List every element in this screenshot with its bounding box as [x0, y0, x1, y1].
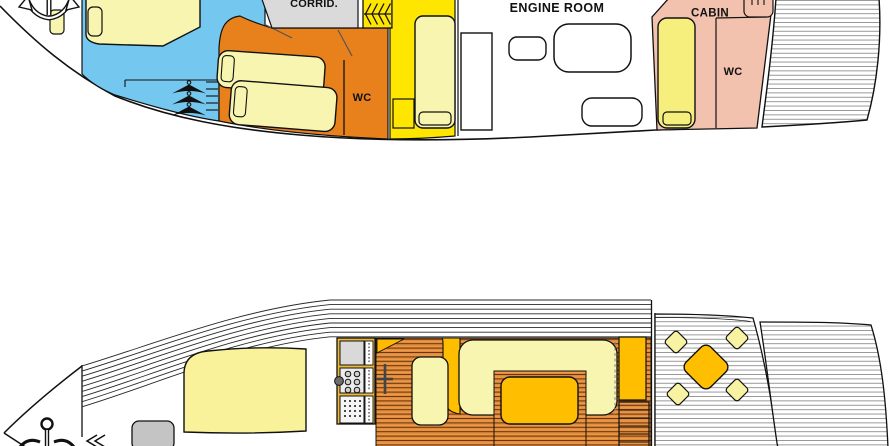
- engine-part: [582, 98, 642, 126]
- engine-block: [554, 24, 631, 72]
- yacht-floor-plans: WC CORRID. ENGINE ROOM: [0, 0, 890, 446]
- bow-chevrons: [87, 435, 105, 446]
- aft-cabin-label: CABIN: [691, 8, 729, 20]
- berth: [415, 16, 455, 128]
- chaise-seat: [412, 357, 448, 425]
- tank: [461, 33, 492, 130]
- galley-sink: [340, 341, 364, 365]
- stove-knob: [335, 377, 344, 386]
- aft-cabin: CABIN WC: [652, 0, 773, 130]
- deck-hatch: [132, 421, 174, 446]
- pillow: [221, 55, 235, 82]
- sideboard: [619, 337, 646, 400]
- companionway-stairs-icon: [363, 0, 392, 28]
- salon-table: [501, 377, 578, 424]
- galley: [335, 338, 375, 424]
- stern-platform: [762, 0, 880, 127]
- pillow: [88, 7, 102, 36]
- pillow: [233, 86, 247, 117]
- mid-cabin-beds: [216, 50, 337, 132]
- step-box: [393, 99, 414, 128]
- galley-side-strips: [365, 341, 373, 423]
- anchor-icon: [20, 419, 74, 446]
- swim-platform: [760, 322, 888, 446]
- galley-drainer: [340, 396, 364, 423]
- steps-down: [619, 402, 649, 446]
- corridor-label: CORRID.: [290, 0, 338, 10]
- pillow: [419, 112, 451, 125]
- mid-wc-label: WC: [353, 92, 372, 104]
- engine-room-label: ENGINE ROOM: [510, 1, 605, 15]
- deck-plans-drawing: WC CORRID. ENGINE ROOM: [0, 0, 890, 446]
- main-deck-plan: [4, 300, 888, 446]
- lower-deck-plan: WC CORRID. ENGINE ROOM: [0, 0, 880, 140]
- engine-part: [509, 37, 546, 60]
- bow-seat: [184, 348, 306, 433]
- aft-wc-label: WC: [724, 66, 743, 78]
- pillow: [663, 112, 691, 125]
